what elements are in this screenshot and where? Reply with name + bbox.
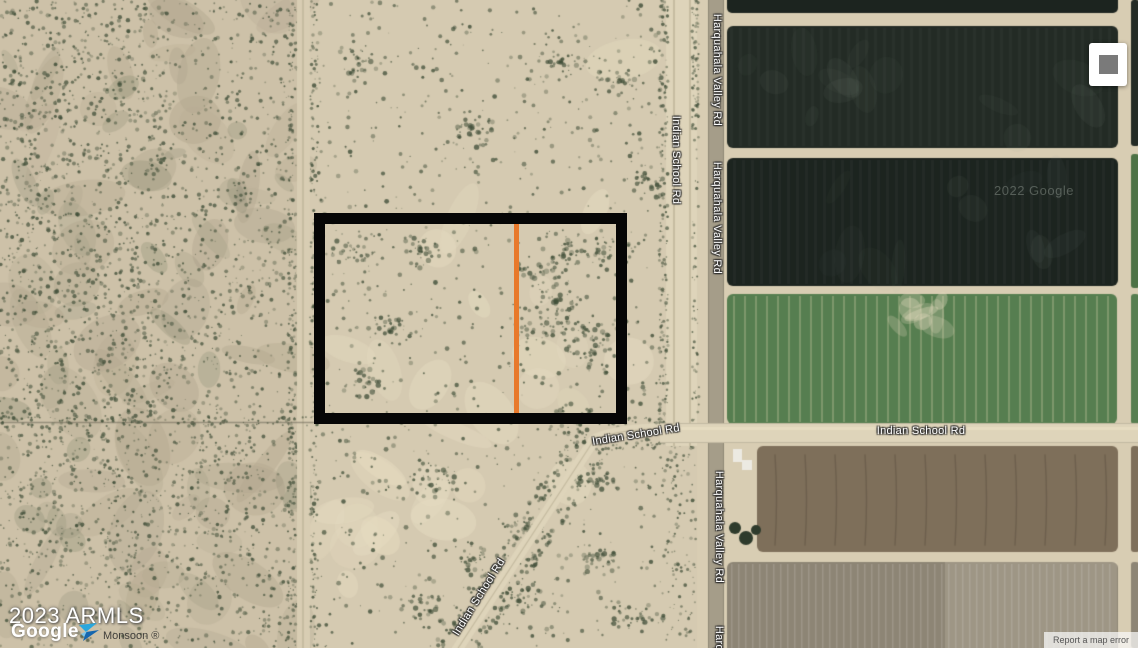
map-placeholder-icon [1099, 55, 1118, 74]
road-label: Harquahala Valley Rd [711, 14, 723, 126]
report-map-error-link[interactable]: Report a map error [1044, 632, 1138, 648]
road-label: Indian School Rd [877, 425, 966, 437]
parcel-divider-line [514, 224, 519, 413]
map-thumbnail-toggle-button[interactable] [1089, 43, 1127, 86]
google-logo[interactable]: Google [11, 621, 79, 643]
satellite-map-viewport[interactable]: Harquahala Valley RdHarquahala Valley Rd… [0, 0, 1138, 648]
parcel-boundary-outline [314, 213, 627, 424]
monsoon-label: Monsoon ® [103, 630, 159, 642]
road-label: Harquahala Valley Rd [713, 471, 725, 583]
road-label: Harquahala Valley Rd [711, 162, 723, 274]
imagery-watermark: 2022 Google [994, 183, 1074, 198]
monsoon-logo: Monsoon ® [77, 621, 159, 643]
road-label: Indian School Rd [670, 116, 682, 205]
monsoon-bird-icon [77, 621, 101, 643]
road-label: Harquahala Valley Rd [713, 626, 725, 648]
